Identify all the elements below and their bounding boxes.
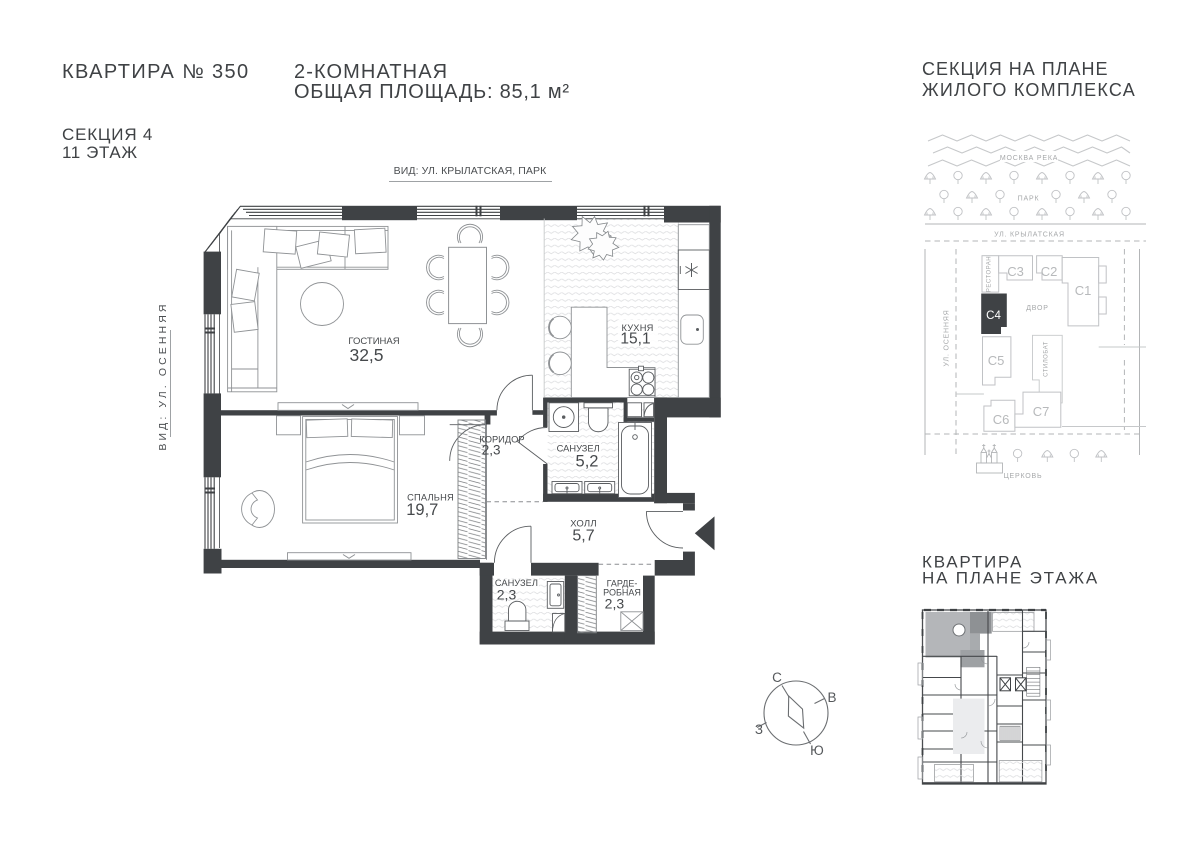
svg-text:Ю: Ю (810, 743, 824, 758)
svg-text:СТИЛОБАТ: СТИЛОБАТ (1044, 341, 1050, 377)
svg-text:2,3: 2,3 (605, 596, 625, 612)
svg-text:МОСКВА РЕКА: МОСКВА РЕКА (1000, 155, 1058, 162)
svg-text:19,7: 19,7 (406, 501, 438, 519)
svg-text:32,5: 32,5 (349, 345, 383, 365)
svg-text:СЕКЦИЯ 4: СЕКЦИЯ 4 (62, 125, 153, 144)
svg-text:15,1: 15,1 (620, 331, 650, 348)
svg-text:С1: С1 (1075, 283, 1092, 298)
svg-text:З: З (755, 722, 763, 737)
svg-text:УЛ. ОСЕННЯЯ: УЛ. ОСЕННЯЯ (944, 310, 951, 367)
svg-text:ЖИЛОГО КОМПЛЕКСА: ЖИЛОГО КОМПЛЕКСА (922, 80, 1136, 100)
svg-text:ВИД: УЛ. КРЫЛАТСКАЯ, ПАРК: ВИД: УЛ. КРЫЛАТСКАЯ, ПАРК (394, 165, 548, 177)
svg-text:2,3: 2,3 (482, 443, 501, 458)
svg-text:ВИД: УЛ. ОСЕННЯЯ: ВИД: УЛ. ОСЕННЯЯ (157, 301, 169, 450)
svg-text:НА ПЛАНЕ ЭТАЖА: НА ПЛАНЕ ЭТАЖА (922, 569, 1099, 588)
svg-text:ЦЕРКОВЬ: ЦЕРКОВЬ (1004, 473, 1043, 480)
svg-text:РЕСТОРАН: РЕСТОРАН (987, 256, 993, 292)
svg-text:С: С (772, 670, 782, 685)
svg-text:В: В (827, 690, 836, 705)
svg-text:С4: С4 (986, 310, 1001, 322)
svg-text:С5: С5 (988, 353, 1005, 368)
svg-text:С3: С3 (1007, 264, 1024, 279)
svg-text:5,2: 5,2 (576, 453, 599, 471)
svg-text:С7: С7 (1033, 404, 1050, 419)
svg-text:2,3: 2,3 (497, 587, 517, 603)
svg-text:11 ЭТАЖ: 11 ЭТАЖ (62, 143, 138, 162)
svg-text:ПАРК: ПАРК (1018, 196, 1040, 203)
svg-text:С2: С2 (1041, 264, 1058, 279)
svg-text:ОБЩАЯ ПЛОЩАДЬ: 85,1 м²: ОБЩАЯ ПЛОЩАДЬ: 85,1 м² (294, 81, 570, 103)
svg-text:5,7: 5,7 (572, 528, 594, 545)
svg-text:2-КОМНАТНАЯ: 2-КОМНАТНАЯ (294, 61, 448, 83)
svg-text:ДВОР: ДВОР (1026, 305, 1049, 312)
svg-text:С6: С6 (993, 412, 1010, 427)
svg-text:КВАРТИРА № 350: КВАРТИРА № 350 (62, 61, 250, 83)
svg-text:СЕКЦИЯ НА ПЛАНЕ: СЕКЦИЯ НА ПЛАНЕ (922, 59, 1109, 79)
svg-text:УЛ. КРЫЛАТСКАЯ: УЛ. КРЫЛАТСКАЯ (994, 232, 1065, 239)
